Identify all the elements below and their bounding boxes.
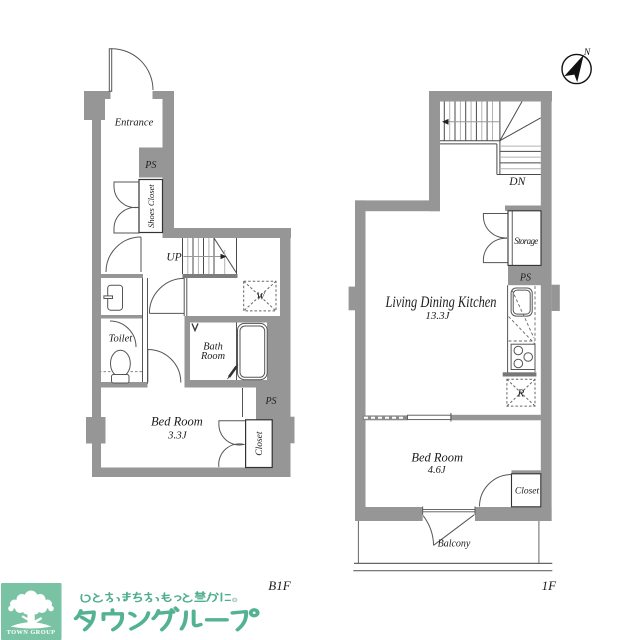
svg-text:N: N [583,48,591,58]
svg-text:3.3J: 3.3J [167,430,188,442]
svg-text:PS: PS [264,396,276,407]
svg-text:TOWN GROUP: TOWN GROUP [7,629,56,636]
svg-text:R: R [517,387,525,399]
svg-text:Toilet: Toilet [109,333,134,344]
svg-text:PS: PS [519,273,531,284]
svg-text:Closet: Closet [515,487,540,497]
svg-text:B1F: B1F [268,578,291,593]
svg-text:Entrance: Entrance [114,117,154,128]
svg-text:1F: 1F [542,578,558,593]
svg-text:Closet: Closet [255,431,265,456]
svg-text:UP: UP [166,252,181,264]
svg-text:Living Dining Kitchen: Living Dining Kitchen [385,294,497,311]
svg-text:Storage: Storage [514,236,538,246]
svg-text:PS: PS [144,160,156,171]
svg-text:Room: Room [200,351,225,362]
svg-text:13.3J: 13.3J [425,310,450,322]
svg-text:Bed Room: Bed Room [151,415,203,429]
svg-text:Balcony: Balcony [438,538,471,549]
svg-text:Bed Room: Bed Room [411,451,463,465]
svg-text:DN: DN [508,176,526,188]
svg-text:4.6J: 4.6J [428,465,447,476]
svg-text:Shoes Closet: Shoes Closet [146,184,156,228]
